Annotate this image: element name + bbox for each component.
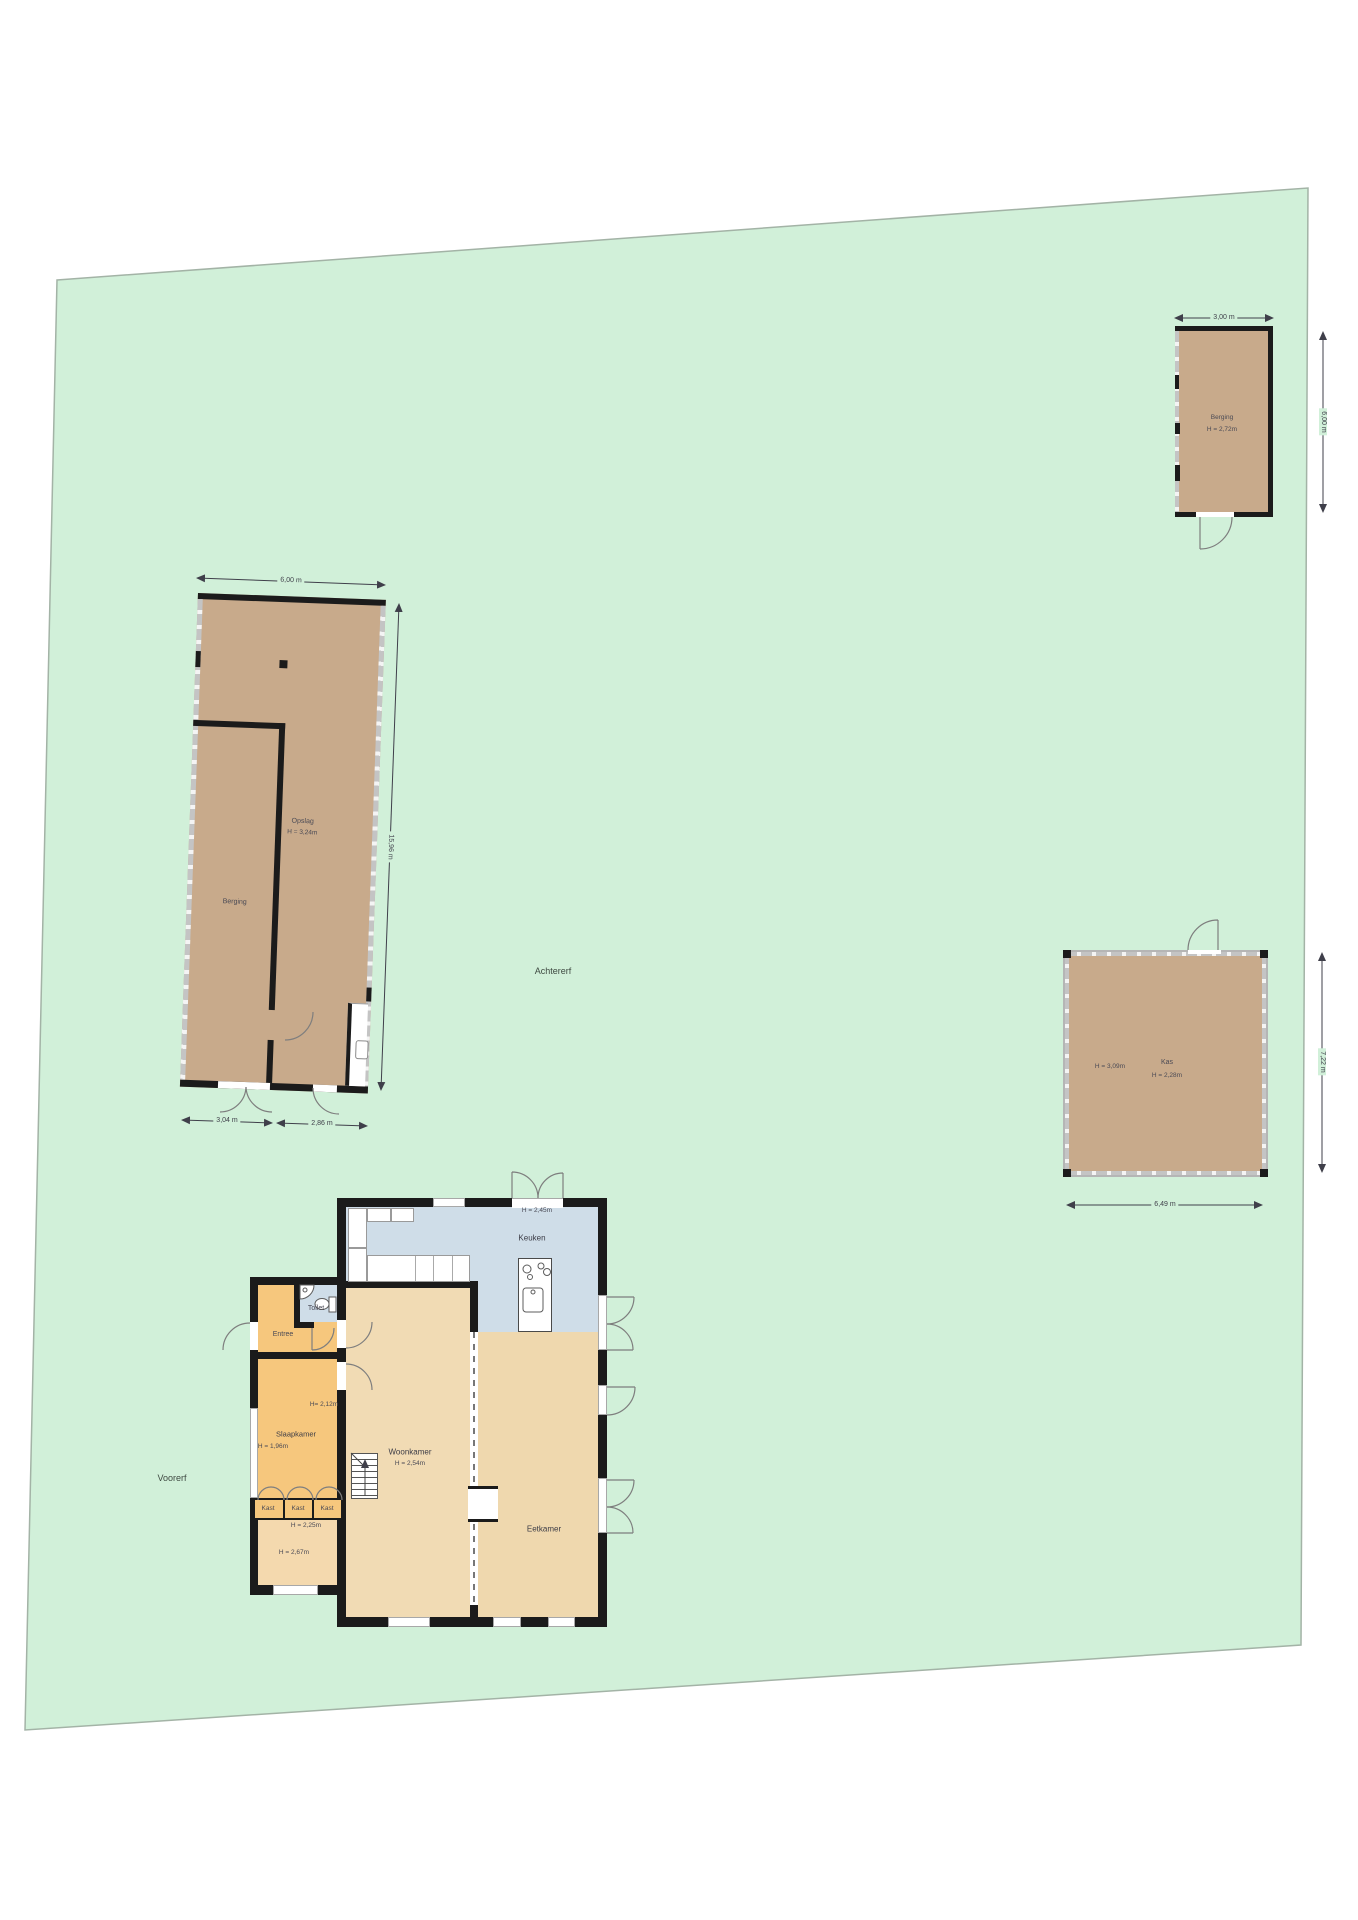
bedroom-living-door-gap	[337, 1362, 346, 1390]
kitchen-cabinet	[367, 1208, 391, 1222]
storage-shed-label: Berging	[1211, 414, 1233, 422]
kitchen-interior-wall-vertical	[470, 1281, 478, 1332]
stairs	[351, 1453, 378, 1499]
barn-opslag-label: Opslag	[291, 818, 313, 827]
closet-divider	[312, 1500, 314, 1518]
storage-shed-wall-mark	[1175, 375, 1179, 389]
storage-shed-left-wall	[1175, 331, 1179, 512]
barn-wall-mark	[366, 987, 372, 1001]
chimney-box	[468, 1486, 498, 1522]
dining-window2	[548, 1617, 575, 1627]
counter-seam	[452, 1256, 453, 1281]
greenhouse-label: Kas	[1161, 1059, 1173, 1067]
storage-shed-height-label: H = 2,72m	[1207, 426, 1237, 434]
living-room-height-label: H = 2,54m	[395, 1460, 425, 1468]
living-room-label: Woonkamer	[389, 1448, 432, 1457]
greenhouse-right-wall	[1262, 953, 1266, 1174]
barn-interior-wall-horizontal	[193, 720, 285, 729]
back-yard-label: Achtererf	[535, 966, 572, 976]
kitchen-interior-wall	[342, 1281, 470, 1288]
storage-shed-wall-mark	[1175, 423, 1180, 434]
toilet-label: Toilet	[308, 1305, 324, 1313]
dim-shed-right: 6,00 m	[1319, 408, 1327, 435]
hall-height-label-top: H = 2,25m	[291, 1522, 321, 1530]
barn-opslag-height-label: H = 3,24m	[287, 828, 317, 837]
house-top-wall	[337, 1198, 607, 1207]
house-right-wall	[598, 1207, 607, 1627]
greenhouse-door-gap	[1188, 950, 1221, 954]
counter-seam	[433, 1256, 434, 1281]
barn-interior-wall-vertical	[269, 723, 286, 1010]
barn-berging-label: Berging	[222, 898, 246, 907]
dim-barn-bottom-right: 2,86 m	[308, 1120, 335, 1128]
kitchen-counter	[348, 1208, 367, 1248]
kitchen-label: Keuken	[518, 1234, 545, 1243]
barn-wall-mark	[195, 651, 201, 667]
barn-fixture	[355, 1040, 369, 1059]
entree-label: Entree	[273, 1331, 294, 1339]
barn-interior-wall-vertical-lower	[266, 1040, 274, 1083]
right-french-door-gap	[598, 1295, 607, 1350]
dim-kas-bottom: 6,49 m	[1151, 1201, 1178, 1209]
dining-double-door-gap	[598, 1478, 607, 1533]
kitchen-island	[518, 1258, 552, 1332]
closet-label-1: Kast	[261, 1505, 274, 1513]
barn-door-gap	[313, 1085, 337, 1093]
counter-seam	[415, 1256, 416, 1281]
entree-slaapkamer-wall	[250, 1352, 344, 1359]
right-door-gap	[598, 1385, 607, 1415]
barn-column	[279, 660, 287, 668]
hall-window	[273, 1585, 318, 1595]
greenhouse-corner	[1063, 950, 1071, 958]
open-wall-stub	[470, 1605, 478, 1617]
kitchen-height-label: H = 2,45m	[522, 1207, 552, 1215]
toilet-left-wall	[294, 1285, 300, 1322]
greenhouse-corner	[1063, 1169, 1071, 1177]
room-eetkamer-floor	[478, 1332, 598, 1617]
kitchen-counter-run	[367, 1255, 470, 1282]
entree-living-door-gap	[337, 1320, 346, 1348]
closet-label-2: Kast	[291, 1505, 304, 1513]
room-toilet-floor	[300, 1285, 337, 1322]
closet-divider	[283, 1500, 285, 1518]
barn-utility-closet	[345, 1003, 368, 1087]
greenhouse-height-label-left: H = 3,09m	[1095, 1063, 1125, 1071]
toilet-bottom-wall	[294, 1322, 314, 1328]
storage-shed-door-gap	[1196, 512, 1234, 517]
dim-barn-bottom-left: 3,04 m	[213, 1117, 240, 1125]
barn: Opslag H = 3,24m Berging	[180, 593, 386, 1094]
dim-shed-top: 3,00 m	[1210, 314, 1237, 322]
kitchen-cabinet	[391, 1208, 414, 1222]
annex-top-wall	[250, 1277, 344, 1285]
closet-label-3: Kast	[320, 1505, 333, 1513]
kitchen-counter-corner	[348, 1248, 367, 1282]
site-plan: Achtererf Voorerf Berging H = 2,72m Opsl…	[0, 0, 1358, 1920]
living-window	[388, 1617, 430, 1627]
open-wall-dashes	[473, 1332, 475, 1617]
bedroom-window	[250, 1408, 258, 1498]
bedroom-label: Slaapkamer	[276, 1430, 316, 1439]
dim-kas-right: 7,22 m	[1318, 1048, 1326, 1075]
dining-room-label: Eetkamer	[527, 1525, 561, 1534]
kitchen-window	[433, 1198, 465, 1207]
entree-door-gap	[250, 1322, 258, 1350]
greenhouse-height-label: H = 2,28m	[1152, 1072, 1182, 1080]
greenhouse-bottom-wall	[1066, 1171, 1265, 1175]
dim-barn-top: 6,00 m	[277, 577, 305, 586]
kitchen-left-wall	[337, 1198, 346, 1288]
front-yard-label: Voorerf	[157, 1473, 186, 1483]
bedroom-height-label2: H= 2,12m	[310, 1401, 338, 1409]
greenhouse-corner	[1260, 1169, 1268, 1177]
greenhouse-corner	[1260, 950, 1268, 958]
dining-window	[493, 1617, 521, 1627]
hall-height-label: H = 2,67m	[279, 1549, 309, 1557]
bedroom-height-label: H = 1,96m	[258, 1443, 288, 1451]
greenhouse-top-wall	[1066, 952, 1265, 956]
dim-barn-right: 15,96 m	[385, 831, 394, 863]
storage-shed-wall-mark	[1175, 465, 1180, 481]
greenhouse-left-wall	[1065, 953, 1069, 1174]
